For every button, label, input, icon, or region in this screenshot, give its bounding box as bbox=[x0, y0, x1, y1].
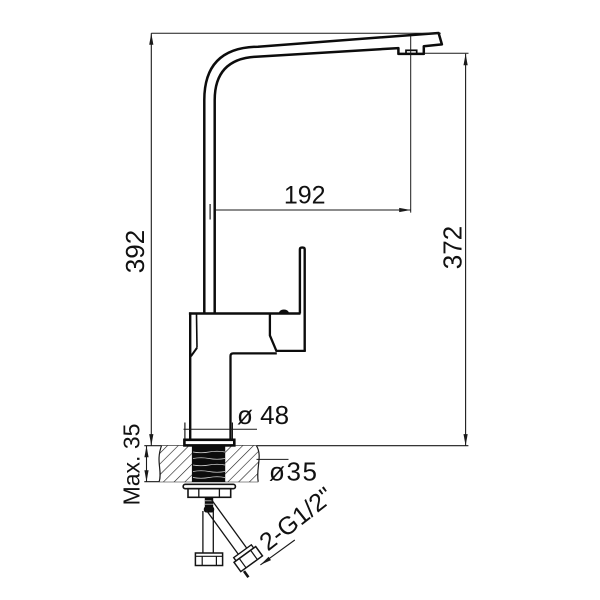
svg-text:ø 48: ø 48 bbox=[237, 400, 289, 430]
svg-text:392: 392 bbox=[120, 230, 150, 273]
svg-text:Max. 35: Max. 35 bbox=[119, 424, 145, 506]
svg-text:ø35: ø35 bbox=[269, 456, 319, 486]
svg-text:372: 372 bbox=[438, 226, 468, 269]
svg-text:192: 192 bbox=[284, 182, 326, 210]
